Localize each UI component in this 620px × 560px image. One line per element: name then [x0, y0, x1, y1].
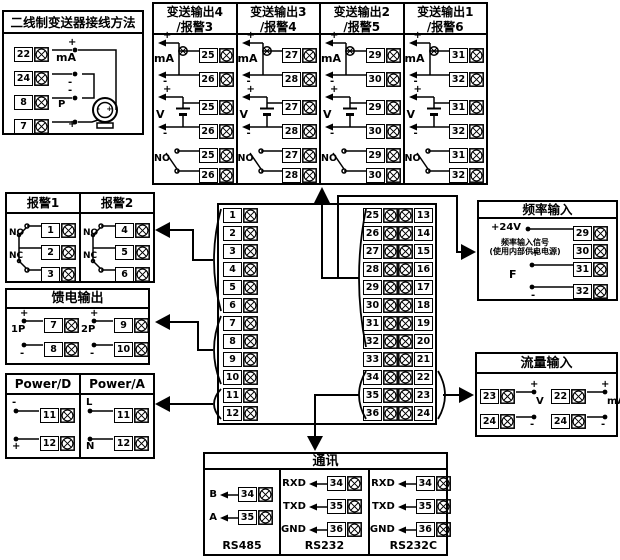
panel-title: 二线制变送器接线方法 — [4, 12, 142, 34]
terminal-number: 4 — [223, 262, 242, 277]
ma-label: mA — [405, 53, 425, 64]
screw-terminal-icon — [302, 100, 317, 115]
screw-terminal-icon — [60, 436, 75, 451]
terminal-31: 31 — [363, 316, 398, 331]
terminal-slot: 2 — [41, 240, 76, 260]
screw-terminal-icon — [219, 72, 234, 87]
screw-terminal-icon — [258, 487, 273, 502]
screw-terminal-icon — [134, 408, 149, 423]
terminal-number: 28 — [282, 72, 301, 87]
terminal-23: 23 — [398, 388, 433, 403]
screw-terminal-icon — [34, 47, 49, 62]
screw-terminal-icon — [383, 388, 398, 403]
terminal-35: 35 — [327, 499, 362, 514]
terminal-number: 32 — [449, 72, 468, 87]
terminal-row: 2917 — [363, 280, 433, 295]
terminal-28: 28 — [363, 262, 398, 277]
screw-terminal-icon — [347, 476, 362, 491]
arrow-left-icon — [396, 479, 416, 489]
terminal-number: 29 — [363, 280, 382, 295]
signal-label: GND — [281, 524, 306, 535]
terminal-number: 30 — [366, 168, 385, 183]
terminal-30: 30 — [366, 124, 401, 139]
terminal-number: 9 — [114, 318, 133, 333]
screw-terminal-icon — [243, 370, 258, 385]
terminal-16: 16 — [398, 262, 433, 277]
terminal-number: 30 — [363, 298, 382, 313]
terminal-slot: 11 — [40, 403, 75, 423]
alarm-column: 报警2 NO NC 4 5 6 — [79, 194, 153, 281]
screw-terminal-icon — [398, 388, 413, 403]
terminal-33: 33 — [363, 352, 398, 367]
terminal-number: 26 — [363, 226, 382, 241]
terminal-number: 2 — [223, 226, 242, 241]
terminal-26: 26 — [199, 124, 234, 139]
screw-terminal-icon — [386, 168, 401, 183]
terminal-slot: 22 — [14, 42, 49, 62]
screw-terminal-icon — [302, 124, 317, 139]
polarity-label: - — [601, 420, 605, 430]
terminal-34: 34 — [238, 487, 273, 502]
terminal-number: 6 — [223, 298, 242, 313]
terminal-number: 22 — [551, 389, 570, 404]
terminal-27: 27 — [282, 48, 317, 63]
terminal-number: 21 — [414, 352, 433, 367]
terminal-22: 22 — [14, 47, 49, 62]
terminal-24: 24 — [398, 406, 433, 421]
v-output-section: + - V 27 28 — [238, 89, 320, 141]
screw-terminal-icon — [302, 148, 317, 163]
terminal-slot: 10 — [114, 337, 149, 357]
arrow-right-icon — [459, 387, 474, 403]
screw-terminal-icon — [64, 342, 79, 357]
screw-terminal-icon — [302, 168, 317, 183]
ma-label: mA — [238, 53, 258, 64]
terminal-number: 31 — [449, 148, 468, 163]
terminal-34: 34 — [327, 476, 362, 491]
terminal-slot: 6 — [115, 262, 150, 282]
comm-row: RXD34 — [370, 472, 457, 495]
screw-terminal-icon — [386, 124, 401, 139]
panel-title-line1: 变送输出3 — [238, 5, 320, 20]
connector-feed-output — [168, 322, 213, 350]
v-label: V — [323, 109, 332, 120]
ma-output-section: + - mA 27 28 — [238, 35, 320, 89]
terminal-slot: 27 — [282, 143, 317, 163]
arrow-left-icon — [155, 222, 170, 238]
terminal-15: 15 — [398, 244, 433, 259]
terminal-number: 24 — [14, 71, 33, 86]
connector-alarms — [168, 230, 213, 260]
terminal-row: 2513 — [363, 208, 433, 223]
alarm-column: 报警1 NO NC 1 2 3 — [7, 194, 79, 281]
unit-label: mA — [607, 397, 620, 407]
screw-terminal-icon — [64, 318, 79, 333]
flow-group: 22 24 + - mA — [551, 376, 619, 432]
screw-terminal-icon — [398, 262, 413, 277]
screw-terminal-icon — [243, 316, 258, 331]
terminal-6: 6 — [115, 267, 150, 282]
power-polarity-label: L — [86, 398, 92, 408]
screw-terminal-icon — [302, 72, 317, 87]
polarity-label: - — [530, 420, 534, 430]
terminal-number: 22 — [14, 47, 33, 62]
terminal-22: 22 — [551, 389, 586, 404]
arrow-left-icon — [396, 525, 416, 535]
no-contact-section: NO 29 30 — [321, 141, 403, 181]
polarity-label: + — [330, 31, 338, 41]
terminal-number: 34 — [416, 476, 435, 491]
signal-label: GND — [370, 524, 395, 535]
screw-terminal-icon — [593, 262, 608, 277]
no-label: NO — [238, 154, 254, 164]
no-label: NO — [405, 154, 421, 164]
power-polarity-label: N — [86, 442, 94, 452]
comm-row: B34 — [205, 483, 279, 506]
screw-terminal-icon — [383, 406, 398, 421]
transmit-output-panel: 变送输出4 /报警3 + - mA 25 26 — [154, 4, 236, 183]
screw-terminal-icon — [500, 389, 515, 404]
screw-terminal-icon — [243, 244, 258, 259]
no-label: NO — [154, 154, 170, 164]
terminal-number: 15 — [414, 244, 433, 259]
terminal-row: 3523 — [363, 388, 433, 403]
terminal-number: 26 — [199, 72, 218, 87]
terminal-9: 9 — [114, 318, 149, 333]
two-wire-transmitter-panel: 二线制变送器接线方法 22 24 8 7 + mA - - P + - + — [2, 10, 144, 135]
unit-label: V — [536, 397, 544, 407]
no-contact-section: NO 25 26 — [154, 141, 236, 181]
terminal-slot: 31 — [449, 95, 484, 115]
terminal-number: 3 — [223, 244, 242, 259]
comm-port: RXD34TXD35GND36 RS232C — [368, 470, 457, 554]
screw-terminal-icon — [398, 316, 413, 331]
polarity-label: + — [330, 85, 338, 95]
terminal-36: 36 — [363, 406, 398, 421]
screw-terminal-icon — [386, 72, 401, 87]
v-label: V — [240, 109, 249, 120]
terminal-10: 10 — [114, 342, 149, 357]
terminal-27: 27 — [282, 148, 317, 163]
power-polarity-label: + — [12, 442, 20, 452]
p-label: P — [58, 100, 65, 110]
feed-output-panel: 馈电输出 1P + - 7 8 2P + - 9 10 — [5, 288, 150, 365]
terminal-14: 14 — [398, 226, 433, 241]
terminal-slot: 29 — [366, 95, 401, 115]
terminal-10: 10 — [223, 370, 258, 385]
power-columns: Power/D - + 11 12 Power/A L N 11 12 — [7, 375, 153, 457]
terminal-26: 26 — [199, 72, 234, 87]
terminal-slot: 27 — [282, 43, 317, 63]
terminal-row: 3624 — [363, 406, 433, 421]
polarity-label: - — [247, 129, 251, 139]
terminal-35: 35 — [416, 499, 451, 514]
screw-terminal-icon — [571, 414, 586, 429]
panel-title-line1: 变送输出4 — [154, 5, 236, 20]
polarity-label: - — [531, 291, 535, 301]
terminal-number: 27 — [282, 100, 301, 115]
terminal-28: 28 — [282, 72, 317, 87]
screw-terminal-icon — [383, 244, 398, 259]
terminal-number: 11 — [40, 408, 59, 423]
ma-output-section: + - mA 29 30 — [321, 35, 403, 89]
terminal-31: 31 — [449, 100, 484, 115]
comm-port-name: RS485 — [205, 539, 279, 552]
terminal-slot: 25 — [199, 95, 234, 115]
terminal-number: 11 — [223, 388, 242, 403]
terminal-slot: 29 — [573, 221, 608, 241]
communication-panel: 通讯 B34A35 RS485 RXD34TXD35GND36 RS232 RX… — [203, 452, 448, 556]
terminal-number: 23 — [480, 389, 499, 404]
terminal-25: 25 — [199, 148, 234, 163]
screw-terminal-icon — [243, 226, 258, 241]
terminal-slot: 26 — [199, 67, 234, 87]
terminal-slot: 12 — [40, 431, 75, 451]
alarm-title: 报警1 — [7, 194, 79, 214]
terminal-7: 7 — [44, 318, 79, 333]
terminal-number: 35 — [363, 388, 382, 403]
screw-terminal-icon — [60, 408, 75, 423]
terminal-29: 29 — [363, 280, 398, 295]
terminal-slot: 8 — [14, 90, 49, 110]
v-label: V — [156, 109, 165, 120]
terminal-number: 19 — [414, 316, 433, 331]
terminal-12: 12 — [40, 436, 75, 451]
screw-terminal-icon — [383, 352, 398, 367]
ma-label: mA — [154, 53, 174, 64]
plus-24v-label: +24V — [491, 223, 521, 233]
terminal-number: 25 — [199, 148, 218, 163]
terminal-row: 2816 — [363, 262, 433, 277]
relay-contact-wiring — [7, 214, 41, 279]
terminal-row: 3321 — [363, 352, 433, 367]
terminal-number: 31 — [449, 48, 468, 63]
terminal-31: 31 — [449, 48, 484, 63]
screw-terminal-icon — [243, 388, 258, 403]
comm-row: TXD35 — [281, 495, 368, 518]
screw-terminal-icon — [383, 226, 398, 241]
comm-port-name: RS232 — [281, 539, 368, 552]
terminal-number: 26 — [199, 124, 218, 139]
terminal-slot: 24 — [551, 409, 586, 429]
terminal-slot: 24 — [480, 409, 515, 429]
comm-row: GND36 — [370, 518, 457, 541]
terminal-slot: 7 — [14, 114, 49, 134]
terminal-19: 19 — [398, 316, 433, 331]
screw-terminal-icon — [436, 499, 451, 514]
terminal-4: 4 — [223, 262, 258, 277]
panel-title-line1: 变送输出2 — [321, 5, 403, 20]
polarity-label: - — [163, 129, 167, 139]
terminal-number: 11 — [114, 408, 133, 423]
terminal-32: 32 — [449, 168, 484, 183]
panel-title: 通讯 — [205, 454, 446, 470]
panel-title: 频率输入 — [479, 202, 616, 219]
terminal-30: 30 — [366, 168, 401, 183]
terminal-slot: 28 — [282, 119, 317, 139]
terminal-29: 29 — [366, 48, 401, 63]
terminal-number: 12 — [40, 436, 59, 451]
terminal-slot: 11 — [114, 403, 149, 423]
terminal-number: 28 — [282, 168, 301, 183]
arrow-left-icon — [307, 502, 327, 512]
arrow-up-icon — [314, 187, 330, 203]
terminal-slot: 4 — [115, 218, 150, 238]
terminal-number: 13 — [414, 208, 433, 223]
terminal-slot: 32 — [573, 279, 608, 299]
terminal-number: 36 — [363, 406, 382, 421]
signal-label: TXD — [283, 501, 306, 512]
terminal-row: 3119 — [363, 316, 433, 331]
alarm-columns: 报警1 NO NC 1 2 3 报警2 NO NC 4 5 6 — [7, 194, 153, 281]
screw-terminal-icon — [243, 280, 258, 295]
screw-terminal-icon — [469, 100, 484, 115]
comm-row: TXD35 — [370, 495, 457, 518]
terminal-slot: 30 — [573, 239, 608, 259]
terminal-slot: 30 — [366, 119, 401, 139]
arrow-left-icon — [155, 396, 170, 412]
transmit-output-panel: 变送输出1 /报警6 + - mA 31 32 — [403, 4, 487, 183]
terminal-slot: 22 — [551, 384, 586, 404]
terminal-slot: 31 — [573, 257, 608, 277]
polarity-label: + — [530, 380, 538, 390]
screw-terminal-icon — [398, 334, 413, 349]
terminal-slot: 26 — [199, 119, 234, 139]
terminal-8: 8 — [14, 95, 49, 110]
terminal-32: 32 — [449, 72, 484, 87]
nc-label: NC — [9, 252, 23, 261]
terminal-slot: 1 — [41, 218, 76, 238]
panel-title: 馈电输出 — [7, 290, 148, 309]
arrow-down-icon — [307, 436, 323, 451]
screw-terminal-icon — [135, 267, 150, 282]
terminal-slot: 27 — [282, 95, 317, 115]
power-panel: Power/D - + 11 12 Power/A L N 11 12 — [5, 373, 155, 459]
terminal-2: 2 — [223, 226, 258, 241]
terminal-17: 17 — [398, 280, 433, 295]
terminal-slot: 3 — [41, 262, 76, 282]
screw-terminal-icon — [243, 352, 258, 367]
wire — [525, 225, 574, 233]
screw-terminal-icon — [469, 124, 484, 139]
polarity-label: + — [68, 120, 76, 130]
terminal-slot: 32 — [449, 67, 484, 87]
screw-terminal-icon — [500, 414, 515, 429]
arrow-left-icon — [218, 513, 238, 523]
terminal-number: 7 — [44, 318, 63, 333]
terminal-6: 6 — [223, 298, 258, 313]
screw-terminal-icon — [34, 119, 49, 134]
screw-terminal-icon — [347, 522, 362, 537]
terminal-7: 7 — [14, 119, 49, 134]
screw-terminal-icon — [469, 148, 484, 163]
wire — [529, 283, 574, 291]
terminal-number: 12 — [223, 406, 242, 421]
relay-contact-wiring — [81, 214, 115, 279]
terminal-number: 6 — [115, 267, 134, 282]
terminal-number: 7 — [223, 316, 242, 331]
v-output-section: + - V 31 32 — [405, 89, 487, 141]
terminal-3: 3 — [223, 244, 258, 259]
terminal-30: 30 — [363, 298, 398, 313]
terminal-number: 10 — [114, 342, 133, 357]
polarity-label: + — [247, 85, 255, 95]
ma-output-section: + - mA 31 32 — [405, 35, 487, 89]
terminal-5: 5 — [115, 245, 150, 260]
screw-terminal-icon — [386, 148, 401, 163]
arrow-right-icon — [461, 244, 476, 260]
terminal-23: 23 — [480, 389, 515, 404]
terminal-28: 28 — [282, 124, 317, 139]
terminal-number: 27 — [363, 244, 382, 259]
terminal-36: 36 — [327, 522, 362, 537]
terminal-9: 9 — [223, 352, 258, 367]
screw-terminal-icon — [593, 284, 608, 299]
terminal-number: 29 — [366, 48, 385, 63]
screw-terminal-icon — [219, 100, 234, 115]
terminal-number: 33 — [363, 352, 382, 367]
terminal-slot: 25 — [199, 43, 234, 63]
signal-label: RXD — [282, 478, 306, 489]
terminal-number: 8 — [44, 342, 63, 357]
screw-terminal-icon — [243, 298, 258, 313]
terminal-row: 3220 — [363, 334, 433, 349]
terminal-1: 1 — [223, 208, 258, 223]
terminal-number: 29 — [366, 148, 385, 163]
screw-terminal-icon — [61, 245, 76, 260]
terminal-29: 29 — [366, 148, 401, 163]
screw-terminal-icon — [135, 245, 150, 260]
polarity-label: - — [90, 349, 94, 359]
terminal-number: 25 — [199, 48, 218, 63]
comm-port-name: RS232C — [370, 539, 457, 552]
terminal-number: 35 — [416, 499, 435, 514]
screw-terminal-icon — [398, 352, 413, 367]
terminal-number: 36 — [327, 522, 346, 537]
power-title: Power/D — [7, 375, 79, 395]
terminal-12: 12 — [114, 436, 149, 451]
terminal-slot: 28 — [282, 163, 317, 183]
polarity-label: + — [163, 85, 171, 95]
screw-terminal-icon — [383, 208, 398, 223]
terminal-slot: 7 — [44, 313, 79, 333]
terminal-24: 24 — [551, 414, 586, 429]
screw-terminal-icon — [398, 280, 413, 295]
screw-terminal-icon — [398, 298, 413, 313]
terminal-slot: 24 — [14, 66, 49, 86]
polarity-label: + — [163, 31, 171, 41]
no-label: NO — [321, 154, 337, 164]
terminal-slot: 32 — [449, 119, 484, 139]
transmit-output-group: 变送输出4 /报警3 + - mA 25 26 — [152, 2, 488, 185]
screw-terminal-icon — [61, 267, 76, 282]
terminal-11: 11 — [223, 388, 258, 403]
terminal-number: 31 — [573, 262, 592, 277]
terminal-number: 23 — [414, 388, 433, 403]
terminal-35: 35 — [363, 388, 398, 403]
frequency-signal-label: 频率输入信号 (使用内部供电电源) — [479, 238, 571, 256]
polarity-label: - — [330, 129, 334, 139]
terminal-2: 2 — [41, 245, 76, 260]
screw-terminal-icon — [469, 72, 484, 87]
screw-terminal-icon — [469, 48, 484, 63]
alarm-panel: 报警1 NO NC 1 2 3 报警2 NO NC 4 5 6 — [5, 192, 155, 283]
terminal-slot: 30 — [366, 67, 401, 87]
terminal-number: 14 — [414, 226, 433, 241]
screw-terminal-icon — [219, 48, 234, 63]
terminal-number: 34 — [363, 370, 382, 385]
ma-label: mA — [321, 53, 341, 64]
